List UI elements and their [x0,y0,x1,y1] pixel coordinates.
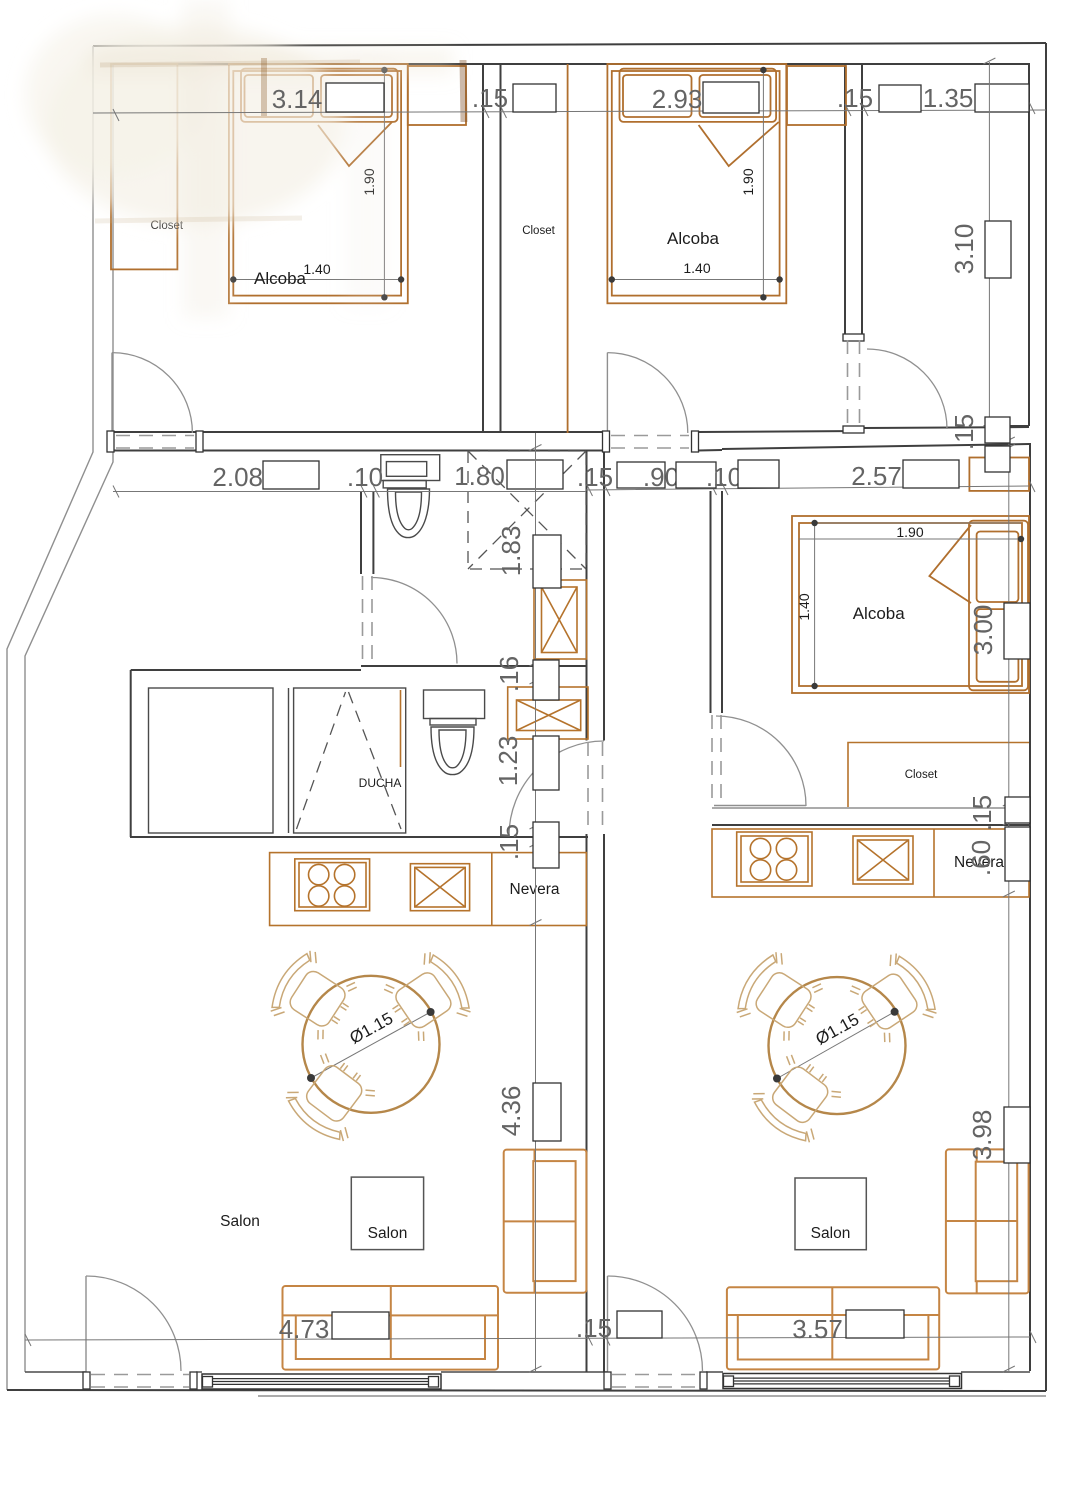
svg-text:.16: .16 [494,656,524,692]
svg-text:4.73: 4.73 [279,1314,330,1344]
svg-text:1.23: 1.23 [493,736,523,787]
svg-text:1.35: 1.35 [923,83,974,113]
svg-text:2.57: 2.57 [851,461,902,491]
svg-text:3.00: 3.00 [968,605,998,656]
svg-text:Salon: Salon [811,1225,851,1242]
svg-text:1.90: 1.90 [740,168,756,195]
svg-text:Nevera: Nevera [510,881,560,898]
svg-text:3.57: 3.57 [792,1314,843,1344]
svg-text:1.40: 1.40 [683,260,710,276]
svg-text:.60: .60 [966,840,996,876]
svg-text:3.14: 3.14 [272,84,323,114]
svg-text:Closet: Closet [905,769,938,781]
svg-text:1.40: 1.40 [796,593,812,620]
svg-text:Alcoba: Alcoba [254,269,307,288]
svg-text:1.83: 1.83 [496,526,526,577]
svg-text:Alcoba: Alcoba [853,604,906,623]
svg-text:.15: .15 [949,414,979,450]
svg-text:Salon: Salon [220,1213,260,1230]
svg-text:.10: .10 [347,462,383,492]
svg-text:3.10: 3.10 [949,224,979,275]
svg-text:4.36: 4.36 [496,1086,526,1137]
svg-text:.10: .10 [706,462,742,492]
svg-text:.15: .15 [576,1313,612,1343]
svg-text:.90: .90 [643,462,679,492]
svg-text:DUCHA: DUCHA [359,776,402,790]
svg-text:Alcoba: Alcoba [667,229,720,248]
svg-text:Closet: Closet [522,225,555,237]
svg-text:.15: .15 [577,462,613,492]
svg-text:.15: .15 [472,83,508,113]
svg-text:1.80: 1.80 [454,461,505,491]
svg-text:.15: .15 [494,824,524,860]
svg-text:.15: .15 [837,83,873,113]
svg-text:2.93: 2.93 [652,84,703,114]
svg-text:Salon: Salon [368,1225,408,1242]
svg-text:2.08: 2.08 [212,462,263,492]
svg-text:.15: .15 [967,795,997,831]
svg-text:1.90: 1.90 [896,524,923,540]
svg-text:1.40: 1.40 [303,261,330,277]
svg-text:3.98: 3.98 [967,1110,997,1161]
